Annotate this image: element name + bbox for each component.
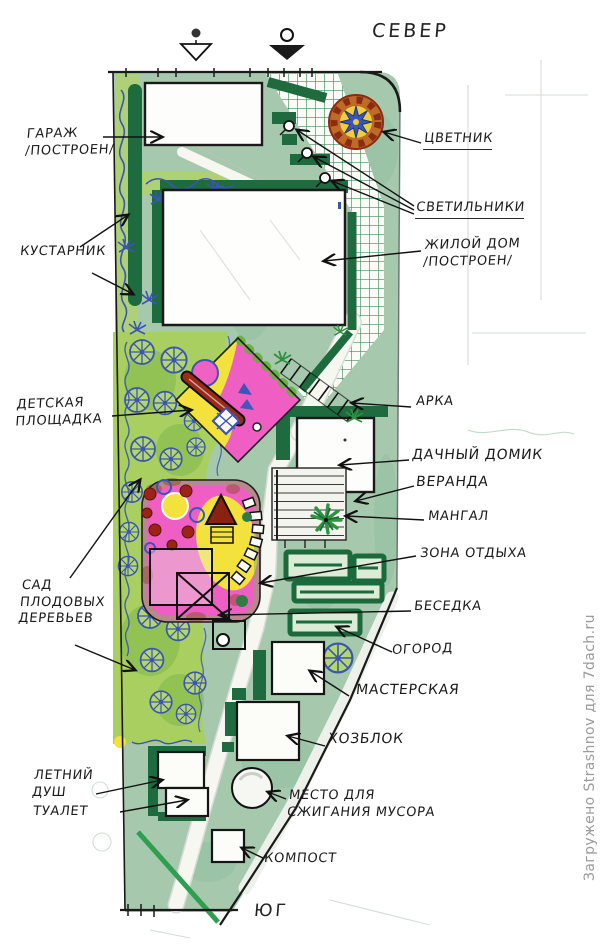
garden-plan-page: ГАРАЖ /ПОСТРОЕН/ КУСТАРНИК ДЕТСКАЯ ПЛОЩА… <box>0 0 600 946</box>
label-veranda: ВЕРАНДА <box>415 474 489 492</box>
garage-building <box>145 83 262 145</box>
label-orchard: САД ПЛОДОВЫХ ДЕРЕВЬЕВ <box>17 578 107 628</box>
label-flower-garden: ЦВЕТНИК <box>423 131 494 150</box>
house-building <box>163 190 345 325</box>
workshop-building <box>272 642 324 694</box>
drive-gate-icon <box>269 29 305 60</box>
label-summer-shower: ЛЕТНИЙ ДУШ <box>31 768 94 801</box>
wicket-gate-icon <box>181 29 211 61</box>
label-house: ЖИЛОЙ ДОМ /ПОСТРОЕН/ <box>422 236 521 271</box>
compass-south: ЮГ <box>253 901 289 921</box>
label-burning-place: МЕСТО ДЛЯ СЖИГАНИЯ МУСОРА <box>286 788 437 821</box>
label-vegetable-garden: ОГОРОД <box>391 641 453 660</box>
burning-place-circle <box>232 768 272 808</box>
utility-block-building <box>237 702 299 760</box>
label-toilet: ТУАЛЕТ <box>32 804 89 821</box>
label-lights: СВЕТИЛЬНИКИ <box>415 200 526 219</box>
label-utility-block: ХОЗБЛОК <box>327 731 404 749</box>
label-workshop: МАСТЕРСКАЯ <box>355 682 460 700</box>
bench <box>211 527 233 543</box>
label-arch: АРКА <box>415 394 454 411</box>
summer-shower-building <box>158 752 204 788</box>
label-compost: КОМПОСТ <box>263 851 337 868</box>
watermark-text: Загружено Strashnov для 7dach.ru <box>582 614 598 881</box>
label-garage: ГАРАЖ /ПОСТРОЕН/ <box>24 125 116 160</box>
label-dacha-house: ДАЧНЫЙ ДОМИК <box>411 447 544 465</box>
veranda-deck <box>272 468 346 548</box>
label-rest-zone: ЗОНА ОТДЫХА <box>419 546 527 563</box>
label-bbq: МАНГАЛ <box>427 509 489 526</box>
yellow-spot <box>114 736 126 748</box>
flower-bed <box>329 95 383 149</box>
label-playground: ДЕТСКАЯ ПЛОЩАДКА <box>15 394 104 430</box>
label-gazebo: БЕСЕДКА <box>413 599 482 616</box>
label-shrubs: КУСТАРНИК <box>19 244 107 261</box>
compost-box <box>212 830 244 862</box>
gate-symbols <box>181 29 305 61</box>
compass-north: СЕВЕР <box>371 20 450 42</box>
